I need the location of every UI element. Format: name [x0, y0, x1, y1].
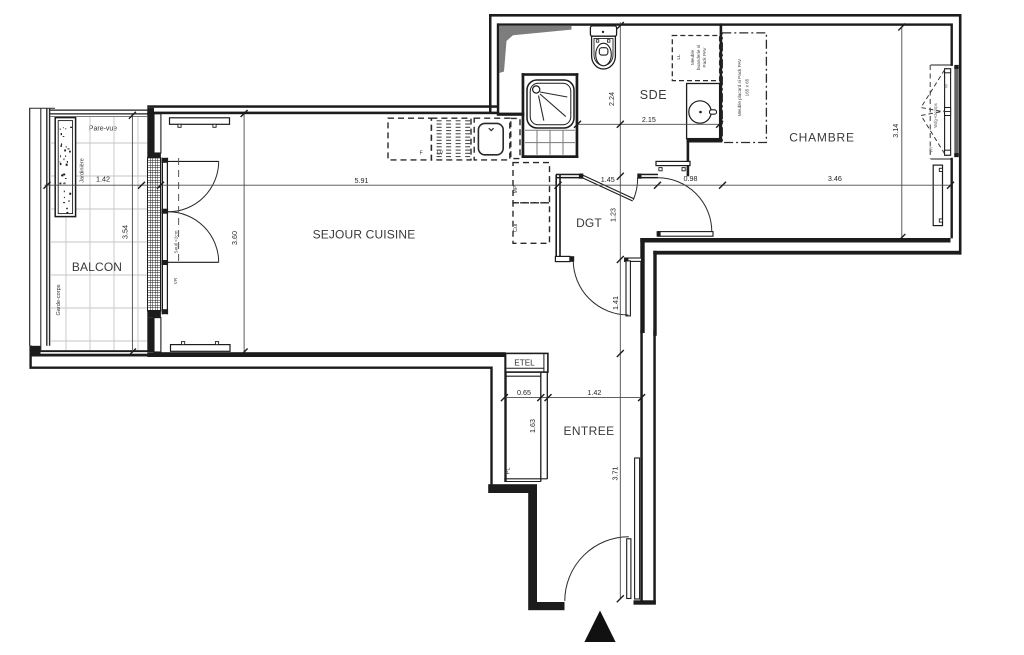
svg-text:CHAMBRE: CHAMBRE — [789, 131, 855, 145]
svg-text:Garde-corps: Garde-corps — [56, 284, 62, 315]
svg-text:VR: VR — [173, 277, 178, 284]
svg-text:Meuble placard si Pack PAV: Meuble placard si Pack PAV — [737, 58, 742, 116]
svg-text:LL: LL — [676, 54, 682, 60]
svg-text:1.63: 1.63 — [528, 419, 537, 433]
svg-text:2.24: 2.24 — [607, 92, 616, 106]
svg-text:3.60: 3.60 — [230, 231, 239, 245]
svg-text:Pack PAV: Pack PAV — [702, 47, 707, 68]
svg-text:165 x 65: 165 x 65 — [745, 78, 750, 96]
svg-text:PL: PL — [506, 467, 512, 475]
svg-text:buanderie si: buanderie si — [696, 45, 701, 70]
svg-text:SDE: SDE — [640, 88, 668, 102]
svg-text:Meuble: Meuble — [690, 50, 695, 66]
svg-text:SEJOUR CUISINE: SEJOUR CUISINE — [313, 228, 416, 242]
svg-text:3.71: 3.71 — [611, 467, 620, 481]
svg-text:Jardinière: Jardinière — [80, 158, 86, 183]
svg-text:1.42: 1.42 — [96, 175, 110, 184]
svg-text:1.23: 1.23 — [608, 208, 617, 222]
svg-text:ETEL: ETEL — [514, 358, 535, 367]
svg-text:MP: MP — [513, 185, 519, 193]
svg-text:W: W — [944, 84, 949, 88]
svg-text:Pare-vue: Pare-vue — [89, 126, 118, 133]
svg-text:ENTREE: ENTREE — [563, 424, 614, 438]
svg-text:2.15: 2.15 — [642, 115, 656, 124]
svg-text:0.98: 0.98 — [684, 174, 698, 183]
svg-text:0.65: 0.65 — [517, 388, 531, 397]
svg-text:3.54: 3.54 — [120, 225, 129, 239]
svg-text:Cui: Cui — [513, 224, 519, 232]
svg-text:LV: LV — [437, 151, 444, 157]
svg-text:Wdg+Gcorps: Wdg+Gcorps — [933, 103, 938, 128]
svg-text:VR: VR — [929, 147, 934, 153]
svg-text:1.42: 1.42 — [587, 388, 601, 397]
svg-text:BALCON: BALCON — [72, 260, 122, 274]
svg-text:3.46: 3.46 — [828, 174, 842, 183]
svg-text:DGT: DGT — [576, 216, 602, 230]
svg-text:Seuil <2cm: Seuil <2cm — [174, 230, 179, 253]
svg-text:5.91: 5.91 — [355, 176, 369, 185]
svg-text:1.45: 1.45 — [601, 175, 615, 184]
svg-text:1.41: 1.41 — [611, 296, 620, 310]
svg-text:3.14: 3.14 — [891, 124, 900, 138]
